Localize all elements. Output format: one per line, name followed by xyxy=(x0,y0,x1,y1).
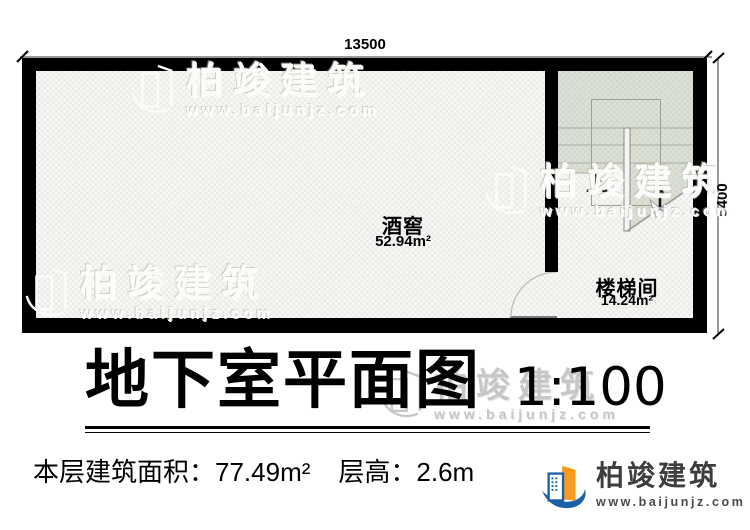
room-area-wine-cellar: 52.94m² xyxy=(348,233,458,250)
brand-name: 柏竣建筑 xyxy=(596,461,745,492)
floor-height-text: 层高：2.6m xyxy=(338,452,474,489)
room-area-stairwell: 14.24m² xyxy=(574,292,680,308)
page-title: 地下室平面图 xyxy=(85,342,481,419)
dimension-right-label: 5400 xyxy=(714,176,730,224)
title-underline-thin xyxy=(85,432,650,433)
divider-wall xyxy=(545,71,558,272)
brand-logo: 柏竣建筑 www.baijunjz.com xyxy=(540,461,745,518)
dimension-top-label: 13500 xyxy=(300,36,430,53)
stair-up-label: 上 xyxy=(586,166,608,198)
title-underline-thick xyxy=(85,426,650,429)
basement-floor-plan-page: 13500 5400 酒窖 52.94m² 楼梯间 14.24m² 上 柏竣建筑… xyxy=(0,0,750,530)
brand-url: www.baijunjz.com xyxy=(596,495,745,509)
building-area-text: 本层建筑面积：77.49m² xyxy=(33,452,310,489)
floor-info: 本层建筑面积：77.49m² 层高：2.6m xyxy=(33,452,474,489)
drawing-scale: 1:100 xyxy=(514,356,667,420)
brand-mark-icon xyxy=(540,461,588,518)
